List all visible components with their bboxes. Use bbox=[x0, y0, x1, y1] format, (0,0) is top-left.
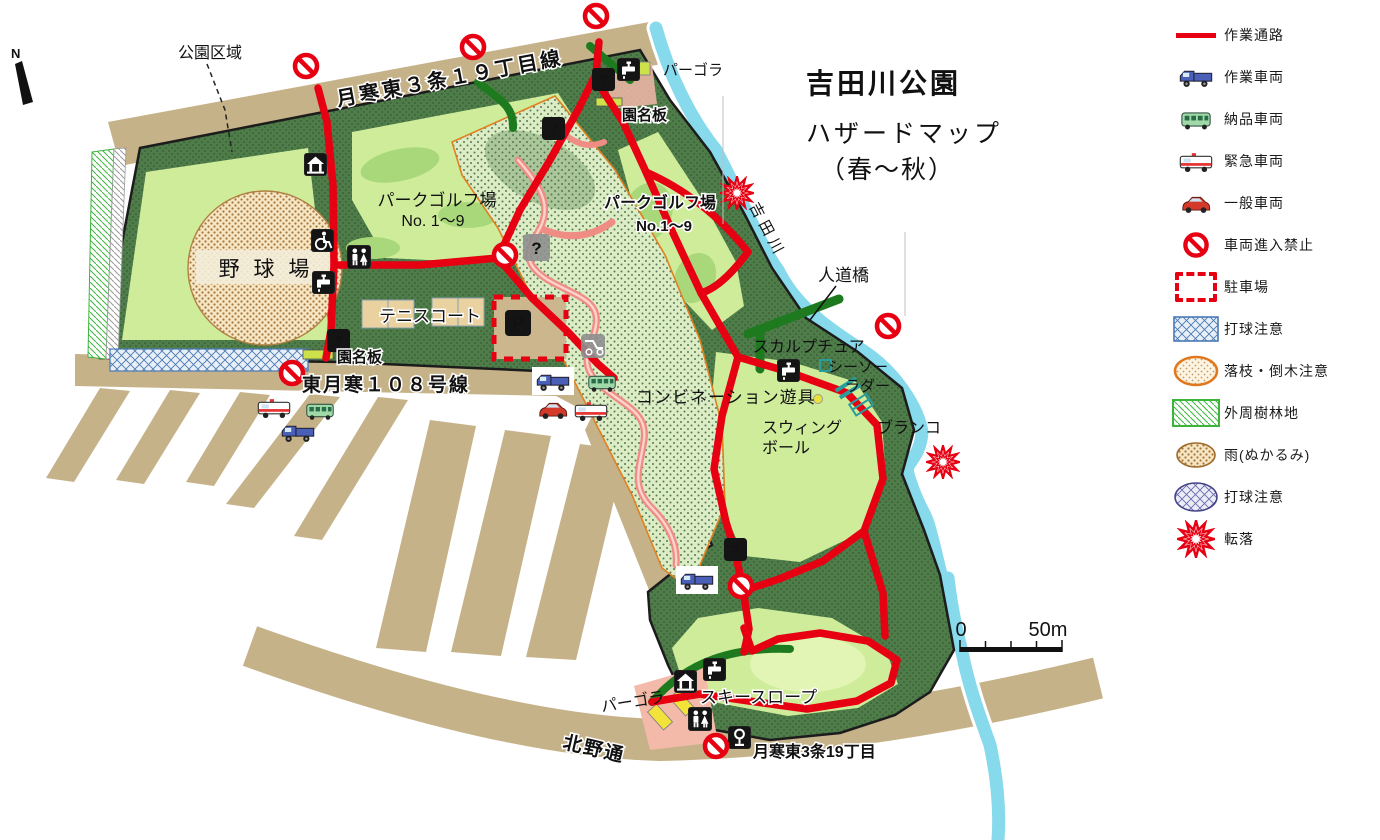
shelter-icon bbox=[674, 670, 697, 693]
legend-label: 作業通路 bbox=[1224, 25, 1284, 45]
tennis-court-label: テニスコート bbox=[379, 307, 481, 326]
water-tap-icon bbox=[703, 658, 726, 681]
legend-row: 一般車両 bbox=[1168, 182, 1376, 224]
legend-label: 落枝・倒木注意 bbox=[1224, 361, 1329, 381]
parking-dashed-icon bbox=[1168, 272, 1224, 302]
info-icon: ? bbox=[592, 68, 615, 91]
legend-row: 落枝・倒木注意 bbox=[1168, 350, 1376, 392]
hazard-map-page: P bbox=[0, 0, 1380, 840]
legend-row: 転落 bbox=[1168, 518, 1376, 560]
no-entry-icon bbox=[585, 5, 607, 27]
legend-row: 駐車場 bbox=[1168, 266, 1376, 308]
sculpture-label: スカルプチュア bbox=[753, 338, 865, 356]
road-west-label: 東月寒１０８号線 bbox=[302, 373, 470, 396]
north-arrow: N bbox=[11, 46, 33, 105]
no-entry-icon bbox=[494, 244, 516, 266]
legend-row: 雨(ぬかるみ) bbox=[1168, 434, 1376, 476]
legend-row: 打球注意 bbox=[1168, 308, 1376, 350]
map-title: 吉田川公園 ハザードマップ （春～秋） bbox=[806, 62, 1002, 186]
shelter-icon bbox=[304, 153, 327, 176]
golf-west-label: パークゴルフ場 bbox=[378, 190, 497, 210]
ball-caution-rect-icon bbox=[1168, 316, 1224, 342]
rain-mud-icon bbox=[1168, 441, 1224, 469]
footbridge-label: 人道橋 bbox=[818, 266, 869, 285]
legend-row: 作業通路 bbox=[1168, 14, 1376, 56]
season-title: （春～秋） bbox=[820, 150, 1002, 186]
no-entry-icon bbox=[730, 575, 752, 597]
water-tap-icon bbox=[777, 359, 800, 382]
seesaw-label: シーソー bbox=[828, 359, 888, 376]
svg-text:?: ? bbox=[599, 72, 608, 89]
name-board-west-label: 園名板 bbox=[337, 348, 383, 366]
parking-glyph: P bbox=[512, 314, 524, 334]
no-entry-icon bbox=[281, 362, 303, 384]
scale-min-label: 0 bbox=[955, 619, 966, 641]
scale-bar: 0 50m bbox=[955, 619, 1067, 652]
water-tap-icon bbox=[312, 271, 335, 294]
perimeter-woodland-icon bbox=[1168, 399, 1224, 427]
north-label: N bbox=[11, 46, 20, 61]
legend-row: 作業車両 bbox=[1168, 56, 1376, 98]
monument-icon bbox=[728, 726, 751, 749]
parking-icon: P bbox=[505, 310, 531, 336]
ski-slope-label: スキースロープ bbox=[700, 688, 817, 707]
pergola-north-label: パーゴラ bbox=[663, 61, 723, 79]
toilet-icon bbox=[347, 245, 371, 269]
falling-branch-icon bbox=[1168, 355, 1224, 387]
legend-label: 緊急車両 bbox=[1224, 151, 1284, 171]
work-truck-icon bbox=[1168, 66, 1224, 89]
ladder-label: ラダー bbox=[845, 378, 890, 395]
name-board-north-label: 園名板 bbox=[622, 106, 668, 124]
legend-label: 駐車場 bbox=[1224, 277, 1269, 297]
legend-label: 外周樹林地 bbox=[1224, 403, 1299, 423]
legend-label: 転落 bbox=[1224, 529, 1254, 549]
district-south-label: 月寒東3条19丁目 bbox=[752, 742, 876, 761]
swing-label: ブランコ bbox=[877, 418, 941, 437]
legend-row: 納品車両 bbox=[1168, 98, 1376, 140]
swing-ball-label: ボール bbox=[762, 439, 810, 457]
legend-row: 打球注意 bbox=[1168, 476, 1376, 518]
delivery-bus-icon bbox=[1168, 109, 1224, 130]
work-route-line-icon bbox=[1168, 33, 1224, 38]
svg-text:?: ? bbox=[549, 121, 558, 138]
legend-label: 納品車両 bbox=[1224, 109, 1284, 129]
general-car-icon bbox=[540, 403, 567, 419]
legend-row: 緊急車両 bbox=[1168, 140, 1376, 182]
ball-caution-band bbox=[110, 349, 308, 371]
no-entry-icon bbox=[295, 55, 317, 77]
ambulance-icon bbox=[1168, 150, 1224, 173]
combination-playground-label: コンビネーション遊具 bbox=[636, 388, 816, 407]
info-icon-gray: ? bbox=[523, 234, 550, 261]
svg-text:?: ? bbox=[334, 333, 343, 350]
wheelchair-icon bbox=[311, 229, 334, 252]
info-icon: ? bbox=[724, 538, 747, 561]
scale-max-label: 50m bbox=[1029, 619, 1068, 641]
golf-west-label: No. 1～9 bbox=[401, 213, 464, 230]
ball-caution-ellipse-icon bbox=[1168, 481, 1224, 513]
legend-label: 打球注意 bbox=[1224, 319, 1284, 339]
toilet-icon bbox=[688, 707, 712, 731]
no-entry-icon bbox=[1168, 232, 1224, 258]
legend: 作業通路 作業車両 納品車両 緊急車両 一般車両 車両進入禁止 駐車場 打球注意 bbox=[1168, 14, 1376, 560]
legend-row: 車両進入禁止 bbox=[1168, 224, 1376, 266]
legend-row: 外周樹林地 bbox=[1168, 392, 1376, 434]
cart-icon bbox=[581, 334, 605, 358]
no-entry-icon bbox=[877, 315, 899, 337]
fall-burst-icon bbox=[1168, 520, 1224, 558]
water-tap-icon bbox=[617, 58, 640, 81]
legend-label: 打球注意 bbox=[1224, 487, 1284, 507]
golf-east-label: パークゴルフ場 bbox=[604, 193, 716, 212]
legend-label: 雨(ぬかるみ) bbox=[1224, 445, 1310, 465]
legend-label: 一般車両 bbox=[1224, 193, 1284, 213]
map-type-title: ハザードマップ bbox=[806, 114, 1002, 150]
no-entry-icon bbox=[462, 36, 484, 58]
golf-east-label: No.1～9 bbox=[636, 218, 692, 235]
baseball-field-label: 野 球 場 bbox=[219, 258, 314, 281]
info-icon: ? bbox=[542, 117, 565, 140]
general-car-icon bbox=[1168, 193, 1224, 214]
ambulance-icon bbox=[258, 399, 289, 418]
no-entry-icon bbox=[705, 735, 727, 757]
legend-label: 作業車両 bbox=[1224, 67, 1284, 87]
svg-text:?: ? bbox=[731, 542, 740, 559]
svg-text:?: ? bbox=[531, 239, 541, 258]
park-area-label: 公園区域 bbox=[178, 44, 242, 62]
legend-label: 車両進入禁止 bbox=[1224, 235, 1314, 255]
swing-ball-label: スウィング bbox=[762, 419, 842, 437]
park-name-title: 吉田川公園 bbox=[806, 62, 1002, 102]
fall-hazard-icon bbox=[927, 446, 959, 478]
